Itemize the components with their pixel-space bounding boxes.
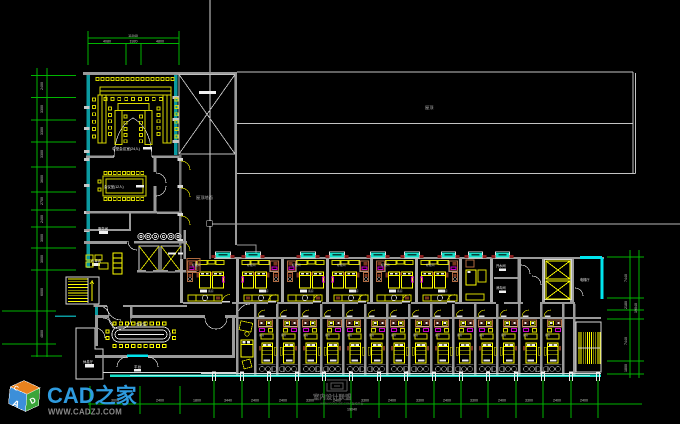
- svg-text:3300: 3300: [40, 105, 44, 113]
- svg-text:客房: 客房: [413, 333, 419, 337]
- svg-text:2180: 2180: [624, 301, 628, 309]
- svg-text:3300: 3300: [470, 399, 478, 403]
- svg-text:2400: 2400: [553, 399, 561, 403]
- svg-text:3000: 3000: [40, 255, 44, 263]
- svg-text:客房: 客房: [308, 289, 314, 293]
- svg-text:客房: 客房: [303, 333, 309, 337]
- svg-text:客房: 客房: [347, 333, 353, 337]
- svg-text:3300: 3300: [40, 150, 44, 158]
- svg-text:2400: 2400: [40, 82, 44, 90]
- svg-text:服务间: 服务间: [98, 226, 109, 231]
- svg-text:客房: 客房: [325, 333, 331, 337]
- svg-text:WWW.CADZJ.COM: WWW.CADZJ.COM: [48, 408, 122, 417]
- svg-text:会议室(12人): 会议室(12人): [104, 184, 124, 189]
- svg-text:1920: 1920: [130, 40, 138, 44]
- svg-text:1800: 1800: [624, 364, 628, 372]
- svg-text:7440: 7440: [624, 337, 628, 345]
- svg-text:标准间: 标准间: [381, 263, 390, 267]
- svg-text:休息厅: 休息厅: [83, 359, 94, 364]
- svg-text:客房: 客房: [545, 333, 551, 337]
- svg-text:电梯厅: 电梯厅: [580, 277, 590, 282]
- svg-text:3300: 3300: [40, 127, 44, 135]
- svg-text:客房: 客房: [259, 333, 265, 337]
- svg-text:2400: 2400: [156, 399, 164, 403]
- svg-text:客房: 客房: [457, 333, 463, 337]
- svg-text:19040: 19040: [634, 303, 638, 313]
- svg-text:标准间: 标准间: [337, 263, 346, 267]
- svg-text:消毒间: 消毒间: [496, 285, 506, 290]
- svg-text:3000: 3000: [40, 234, 44, 242]
- svg-text:2400: 2400: [498, 399, 506, 403]
- svg-text:3440: 3440: [224, 399, 232, 403]
- svg-text:客房: 客房: [397, 289, 403, 293]
- svg-text:3300: 3300: [525, 399, 533, 403]
- svg-text:3300: 3300: [416, 399, 424, 403]
- svg-text:客房: 客房: [369, 333, 375, 337]
- svg-text:2400: 2400: [279, 399, 287, 403]
- svg-text:标准间: 标准间: [426, 263, 435, 267]
- svg-text:3600: 3600: [40, 175, 44, 183]
- svg-text:中型会议室(24人): 中型会议室(24人): [112, 146, 140, 151]
- svg-text:室内设计联盟: 室内设计联盟: [313, 392, 352, 401]
- svg-text:4800: 4800: [40, 330, 44, 338]
- svg-text:7440: 7440: [624, 274, 628, 282]
- svg-text:会议室: 会议室: [136, 322, 147, 327]
- svg-text:标准间: 标准间: [192, 263, 201, 267]
- svg-text:客房: 客房: [501, 333, 507, 337]
- svg-text:客房: 客房: [479, 333, 485, 337]
- svg-text:4800: 4800: [156, 40, 164, 44]
- svg-text:平台: 平台: [134, 364, 142, 369]
- svg-text:2400: 2400: [388, 399, 396, 403]
- svg-text:客房: 客房: [442, 289, 448, 293]
- svg-text:6000: 6000: [40, 288, 44, 296]
- svg-text:客房: 客房: [281, 333, 287, 337]
- svg-text:CAD之家: CAD之家: [47, 383, 138, 408]
- svg-text:19040: 19040: [347, 408, 357, 412]
- svg-text:WWW.COOL-DE.COM 互动平台: WWW.COOL-DE.COM 互动平台: [320, 401, 364, 406]
- svg-text:2400: 2400: [580, 399, 588, 403]
- svg-text:客房: 客房: [208, 289, 214, 293]
- svg-text:11040: 11040: [128, 34, 138, 38]
- svg-text:4080: 4080: [103, 40, 111, 44]
- svg-text:2400: 2400: [443, 399, 451, 403]
- svg-text:2400: 2400: [40, 215, 44, 223]
- svg-text:客房: 客房: [263, 289, 269, 293]
- svg-text:开水间: 开水间: [496, 263, 506, 268]
- svg-text:2700: 2700: [40, 197, 44, 205]
- svg-text:客房: 客房: [523, 333, 529, 337]
- svg-text:屋顶地面: 屋顶地面: [196, 194, 213, 201]
- svg-text:1800: 1800: [193, 399, 201, 403]
- svg-text:标准间: 标准间: [247, 263, 256, 267]
- svg-text:标准间: 标准间: [292, 263, 301, 267]
- svg-text:客房: 客房: [353, 289, 359, 293]
- svg-text:客房: 客房: [391, 333, 397, 337]
- svg-text:2400: 2400: [251, 399, 259, 403]
- svg-text:客房: 客房: [435, 333, 441, 337]
